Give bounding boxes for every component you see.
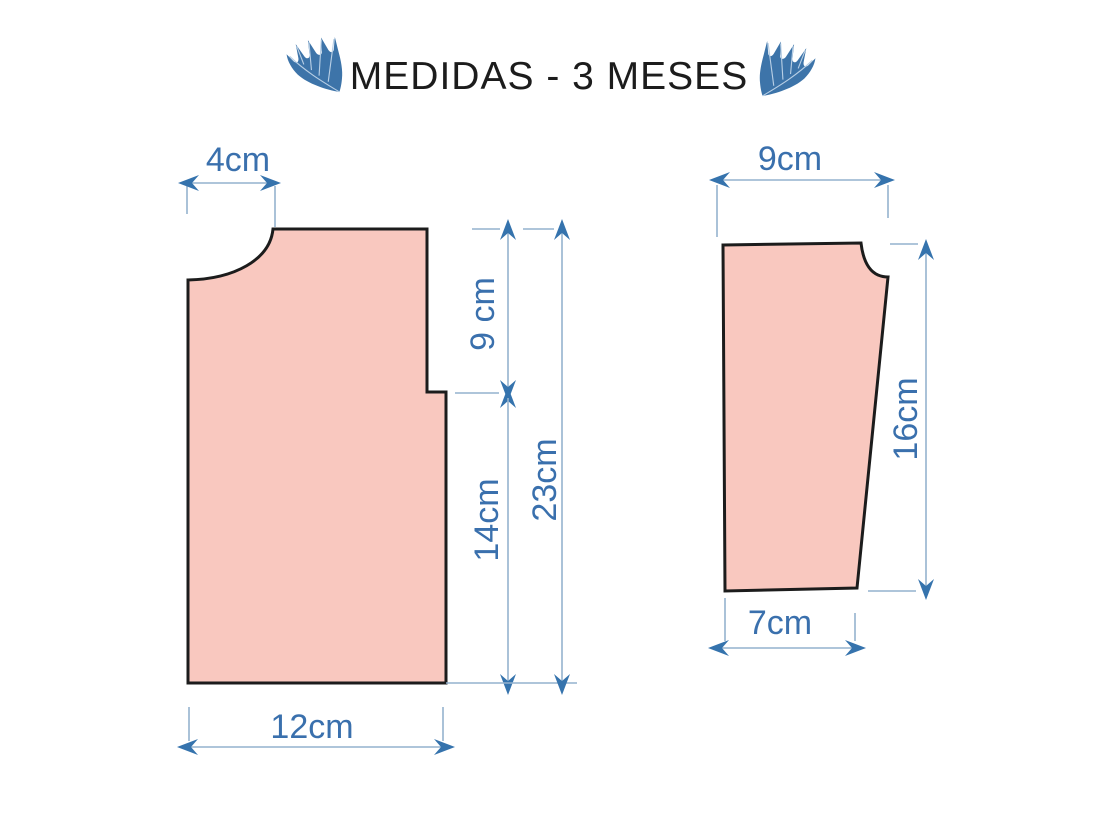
- bodice-total-length-measurement-label: 23cm: [528, 438, 562, 521]
- bodice-shoulder-dimension: [178, 175, 281, 227]
- pattern-measurement-diagram: MEDIDAS - 3 MESES: [0, 0, 1099, 825]
- sleeve-length-measurement-label: 16cm: [889, 377, 923, 460]
- sleeve-top-width-measurement-label: 9cm: [758, 142, 822, 176]
- sleeve-top-width-dimension: [709, 172, 895, 237]
- bodice-bottom-width-measurement-label: 12cm: [270, 710, 353, 744]
- bodice-shoulder-measurement-label: 4cm: [206, 143, 270, 177]
- bodice-side-measurement-label: 14cm: [470, 478, 504, 561]
- pattern-drawing: [0, 0, 1099, 825]
- sleeve-piece-shape: [723, 243, 888, 591]
- bodice-piece-shape: [188, 229, 446, 683]
- sleeve-bottom-width-measurement-label: 7cm: [748, 606, 812, 640]
- bodice-armhole-depth-measurement-label: 9 cm: [466, 277, 500, 351]
